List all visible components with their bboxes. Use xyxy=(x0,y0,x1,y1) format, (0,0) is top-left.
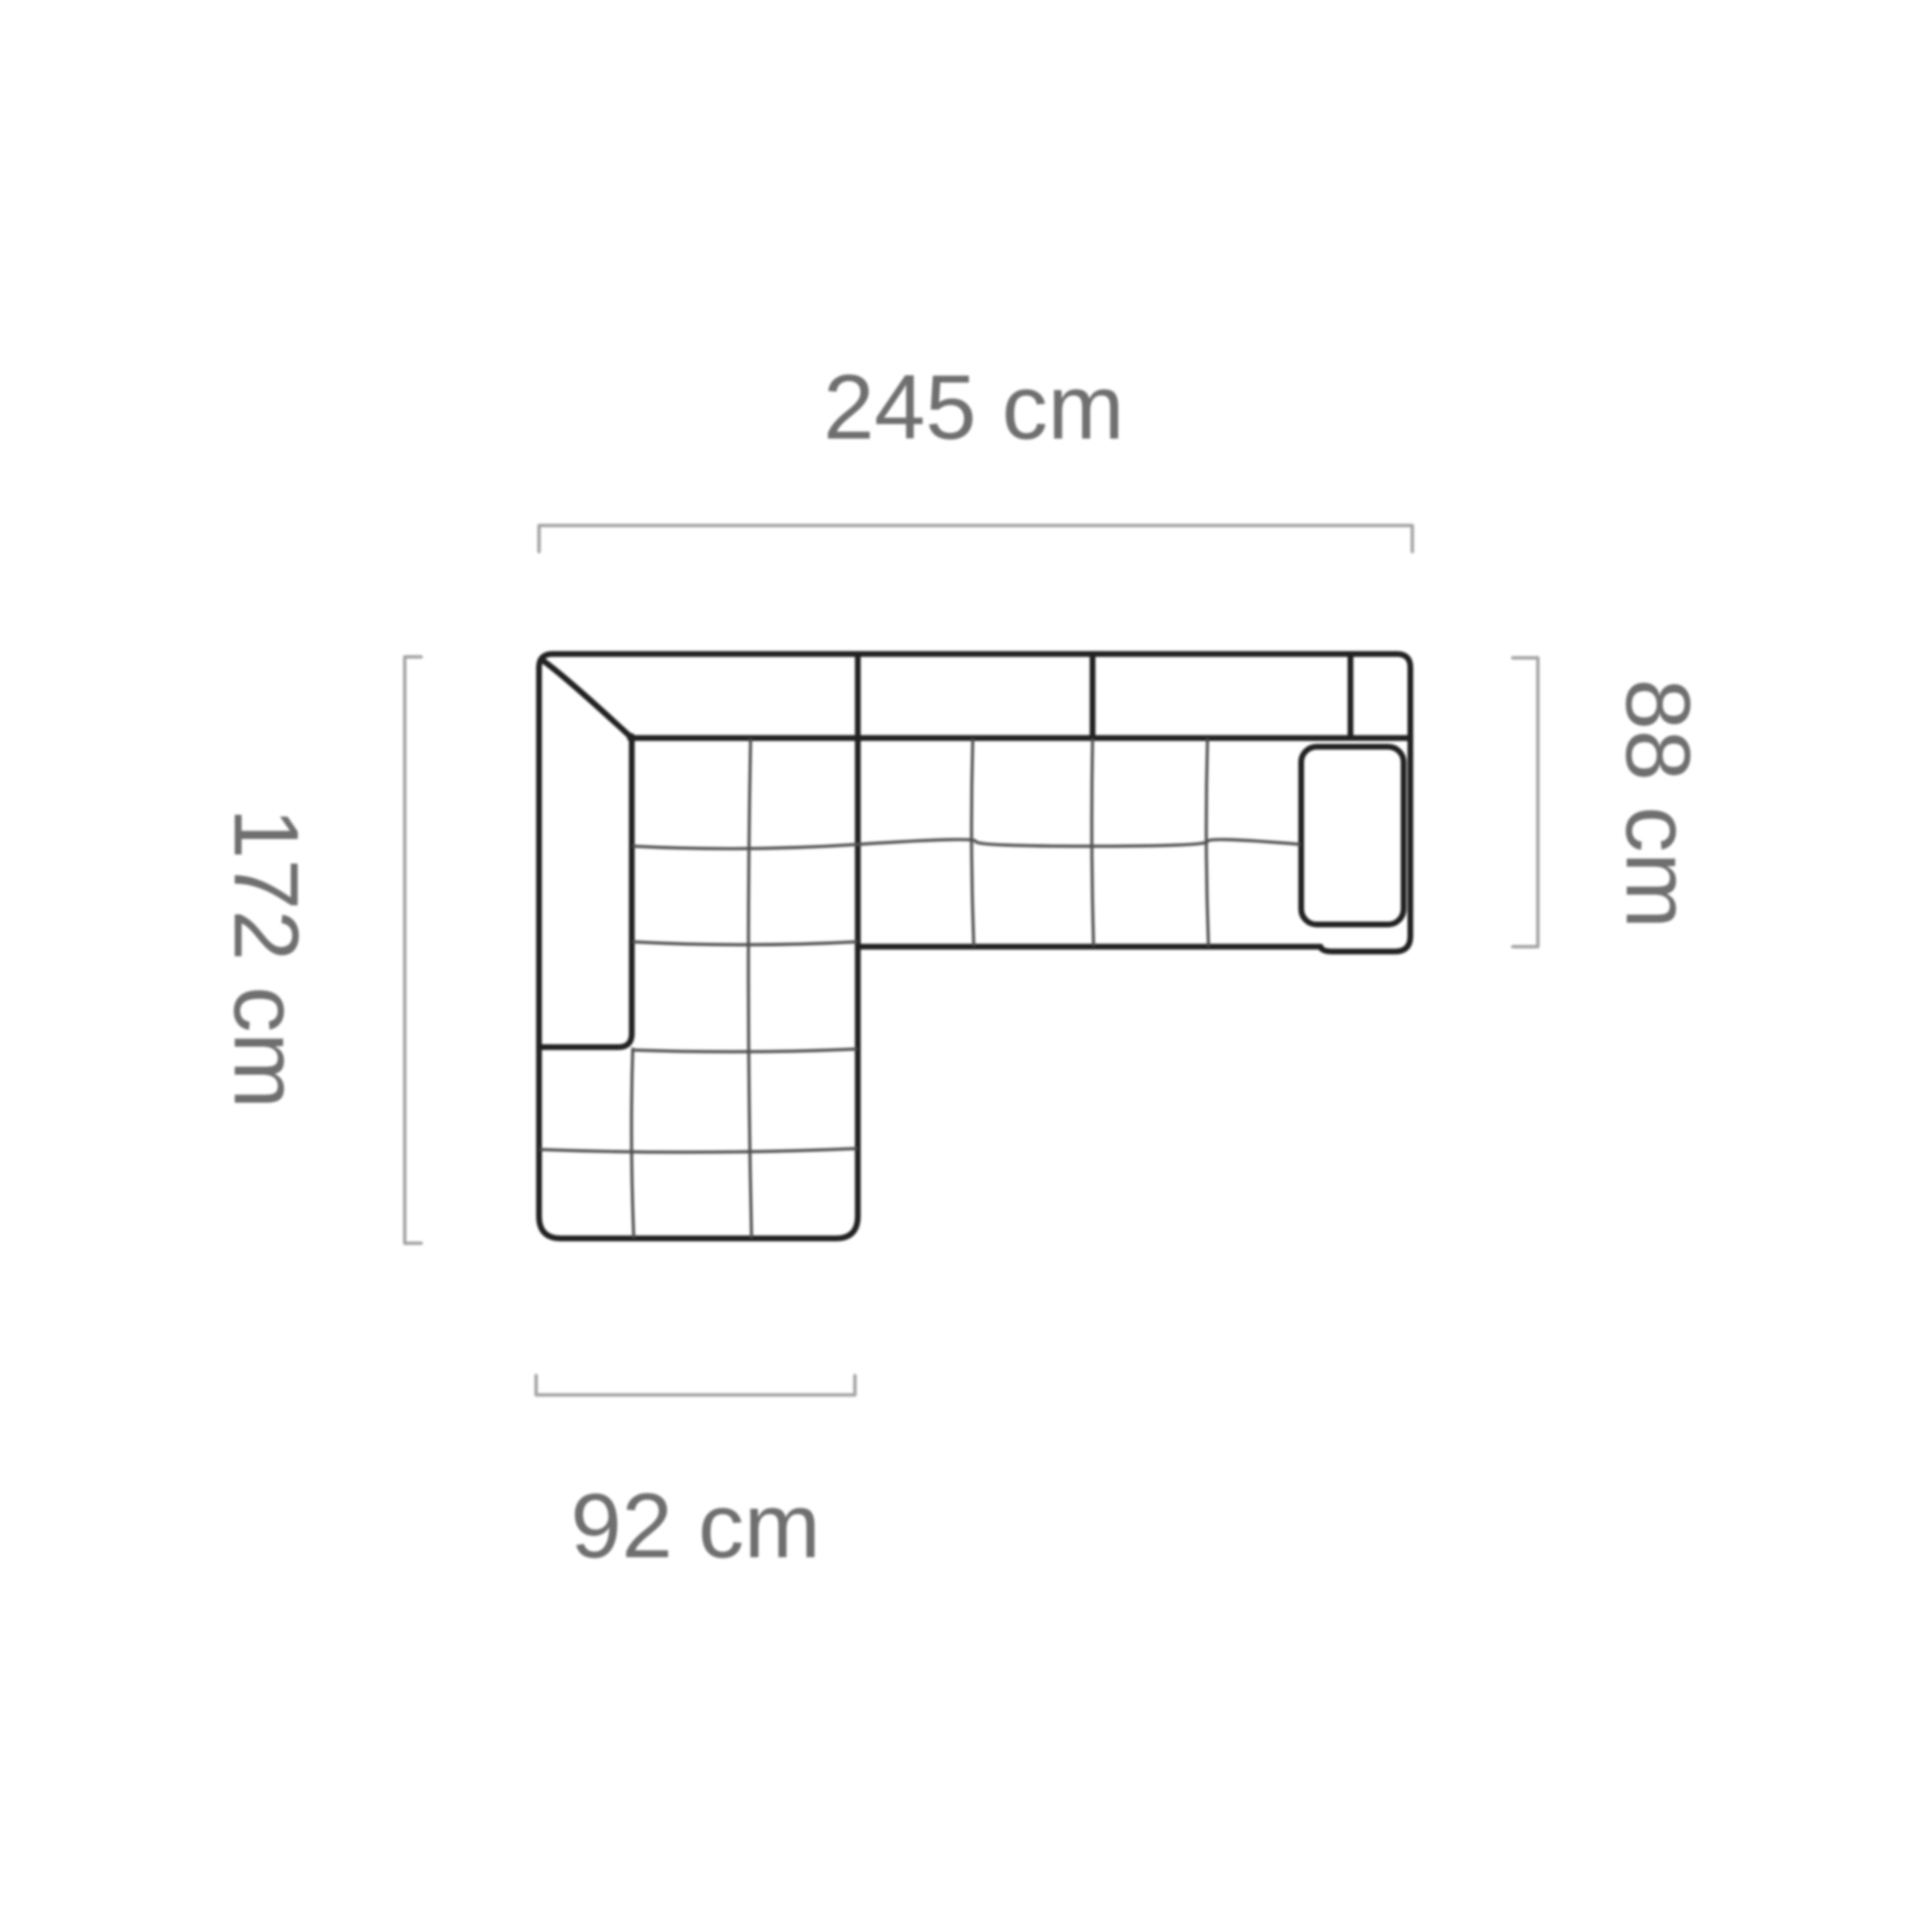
svg-text:245 cm: 245 cm xyxy=(823,356,1124,459)
svg-text:92 cm: 92 cm xyxy=(571,1475,821,1577)
svg-text:172 cm: 172 cm xyxy=(214,808,317,1109)
svg-text:88 cm: 88 cm xyxy=(1606,679,1709,929)
